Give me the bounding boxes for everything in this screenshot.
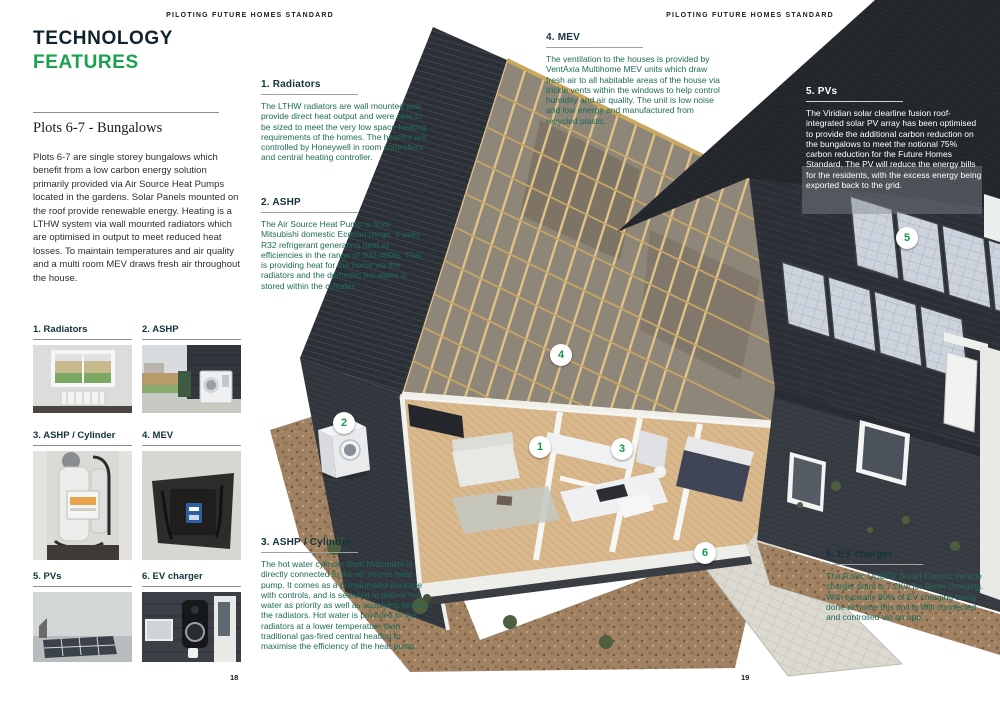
running-header-right: PILOTING FUTURE HOMES STANDARD xyxy=(500,12,1000,19)
section-heading: 3. ASHP / Cylinder xyxy=(261,537,433,548)
page-title-line1: TECHNOLOGY xyxy=(33,27,173,51)
thumbnail-label: 4. MEV xyxy=(142,430,241,441)
heading-underline xyxy=(826,564,923,565)
section-body: The Viridian solar clearline fusion roof… xyxy=(806,108,982,190)
callout-marker-1: 1 xyxy=(529,436,551,458)
page-title-line2: FEATURES xyxy=(33,51,173,75)
thumbnail-ashp: 2. ASHP xyxy=(142,324,241,413)
brochure-spread: PILOTING FUTURE HOMES STANDARD PILOTING … xyxy=(0,0,1000,707)
label-underline xyxy=(142,339,241,340)
thumbnail-label: 3. ASHP / Cylinder xyxy=(33,430,132,441)
callout-marker-4: 4 xyxy=(550,344,572,366)
section-body: The Rolec QUBEV Smart Electric Vehicle c… xyxy=(826,571,988,622)
section-heading: 6. EV charger xyxy=(826,549,988,560)
cylinder-photo xyxy=(33,451,132,560)
ashp-photo xyxy=(142,345,241,413)
label-underline xyxy=(33,445,132,446)
label-underline xyxy=(142,445,241,446)
section-heading: 4. MEV xyxy=(546,32,720,43)
label-underline xyxy=(33,586,132,587)
heading-underline xyxy=(806,101,903,102)
section-heading: 5. PVs xyxy=(806,86,982,97)
pvs-photo xyxy=(33,592,132,662)
callout-marker-6: 6 xyxy=(694,542,716,564)
thumbnail-label: 5. PVs xyxy=(33,571,132,582)
heading-underline xyxy=(261,212,358,213)
divider-rule xyxy=(33,112,219,113)
front-door xyxy=(944,352,977,432)
callout-marker-5: 5 xyxy=(896,227,918,249)
section-heading: 2. ASHP xyxy=(261,197,429,208)
label-underline xyxy=(33,339,132,340)
section-radiators: 1. Radiators The LTHW radiators are wall… xyxy=(261,79,429,163)
thumbnail-label: 2. ASHP xyxy=(142,324,241,335)
section-body: The Air Source Heat Pump is from Mitsubi… xyxy=(261,219,429,291)
section-mev: 4. MEV The ventilation to the houses is … xyxy=(546,32,720,126)
callout-marker-3: 3 xyxy=(611,438,633,460)
page-number-left: 18 xyxy=(230,673,238,682)
thumbnail-label: 6. EV charger xyxy=(142,571,241,582)
label-underline xyxy=(142,586,241,587)
ev-charger-photo xyxy=(142,592,241,662)
thumbnail-pvs: 5. PVs xyxy=(33,571,132,662)
callout-marker-2: 2 xyxy=(333,412,355,434)
heading-underline xyxy=(546,47,643,48)
section-pvs: 5. PVs The Viridian solar clearline fusi… xyxy=(806,86,982,190)
thumbnail-ashp-cylinder: 3. ASHP / Cylinder xyxy=(33,430,132,560)
section-ev-charger: 6. EV charger The Rolec QUBEV Smart Elec… xyxy=(826,549,988,622)
section-ashp-cylinder: 3. ASHP / Cylinder The hot water cylinde… xyxy=(261,537,433,652)
intro-paragraph: Plots 6-7 are single storey bungalows wh… xyxy=(33,151,240,285)
thumbnail-radiators: 1. Radiators xyxy=(33,324,132,413)
thumbnail-label: 1. Radiators xyxy=(33,324,132,335)
mev-photo xyxy=(142,451,241,560)
heading-underline xyxy=(261,552,358,553)
heading-underline xyxy=(261,94,358,95)
section-ashp: 2. ASHP The Air Source Heat Pump is from… xyxy=(261,197,429,291)
plots-subtitle: Plots 6-7 - Bungalows xyxy=(33,120,162,137)
section-heading: 1. Radiators xyxy=(261,79,429,90)
page-number-right: 19 xyxy=(741,673,749,682)
running-header-left: PILOTING FUTURE HOMES STANDARD xyxy=(0,12,500,19)
page-title: TECHNOLOGY FEATURES xyxy=(33,27,173,75)
radiator-photo xyxy=(33,345,132,413)
section-body: The ventilation to the houses is provide… xyxy=(546,54,720,126)
section-body: The hot water cylinder from Mitsubishi i… xyxy=(261,559,433,652)
thumbnail-mev: 4. MEV xyxy=(142,430,241,560)
roof-vent xyxy=(984,194,1000,242)
section-body: The LTHW radiators are wall mounted and … xyxy=(261,101,429,163)
thumbnail-ev-charger: 6. EV charger xyxy=(142,571,241,662)
